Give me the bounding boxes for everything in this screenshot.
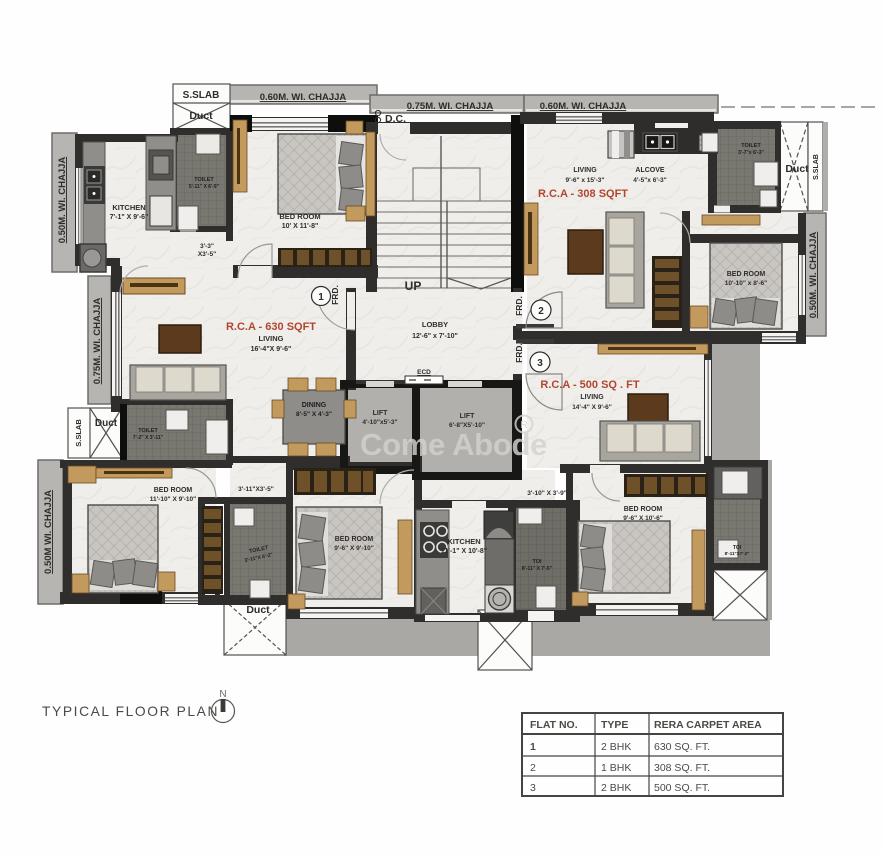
svg-text:Duct: Duct — [246, 604, 270, 616]
svg-text:9'-6" X 10'-6": 9'-6" X 10'-6" — [623, 515, 663, 522]
svg-text:KITCHEN: KITCHEN — [447, 537, 480, 546]
svg-text:0.50M. WI. CHAJJA: 0.50M. WI. CHAJJA — [57, 157, 68, 244]
svg-text:FRD.: FRD. — [330, 285, 340, 305]
svg-text:D.C.: D.C. — [385, 113, 406, 125]
svg-text:8'-5" X 4'-3": 8'-5" X 4'-3" — [296, 411, 332, 418]
svg-text:8'-11" X 7'-5": 8'-11" X 7'-5" — [522, 566, 553, 572]
svg-text:7'-1" X 9'-6": 7'-1" X 9'-6" — [110, 214, 149, 221]
svg-text:0.60M. WI. CHAJJA: 0.60M. WI. CHAJJA — [260, 92, 347, 103]
svg-text:10'-10" x 8'-6": 10'-10" x 8'-6" — [725, 280, 768, 287]
svg-text:3'-7"x 6'-3": 3'-7"x 6'-3" — [738, 150, 764, 156]
svg-text:0.50M WI. CHAJJA: 0.50M WI. CHAJJA — [43, 490, 54, 574]
svg-text:3'-3": 3'-3" — [200, 243, 214, 250]
svg-text:R: R — [520, 419, 528, 431]
svg-text:Come Abode: Come Abode — [360, 427, 547, 462]
svg-text:TYPE: TYPE — [601, 719, 628, 731]
svg-text:TOILET: TOILET — [741, 143, 761, 149]
svg-text:7'-2" X 3'-11": 7'-2" X 3'-11" — [133, 435, 164, 441]
svg-text:9'-6" x 15'-3": 9'-6" x 15'-3" — [566, 177, 605, 184]
svg-text:3'-11"X3'-5": 3'-11"X3'-5" — [238, 486, 274, 493]
svg-text:BED ROOM: BED ROOM — [154, 487, 193, 494]
svg-text:0.50M. WI. CHAJJA: 0.50M. WI. CHAJJA — [808, 232, 819, 319]
svg-text:3: 3 — [530, 782, 536, 794]
svg-text:Duct: Duct — [95, 418, 118, 429]
svg-text:3: 3 — [537, 358, 543, 369]
svg-text:LIFT: LIFT — [460, 413, 475, 420]
svg-text:FLAT NO.: FLAT NO. — [530, 719, 578, 731]
svg-text:ALCOVE: ALCOVE — [635, 167, 665, 174]
svg-text:0.75M. WI. CHAJJA: 0.75M. WI. CHAJJA — [92, 298, 103, 385]
svg-text:4'-5"x 6'-3": 4'-5"x 6'-3" — [633, 177, 666, 184]
svg-text:S.SLAB: S.SLAB — [813, 154, 820, 180]
svg-text:10' X 11'-8": 10' X 11'-8" — [282, 223, 319, 230]
svg-text:FRD.: FRD. — [514, 296, 524, 316]
svg-text:BED ROOM: BED ROOM — [727, 271, 766, 278]
svg-text:S.SLAB: S.SLAB — [74, 419, 83, 447]
svg-text:1 BHK: 1 BHK — [601, 762, 631, 774]
svg-text:12'-6" x 7'-10": 12'-6" x 7'-10" — [412, 333, 458, 340]
svg-text:R.C.A - 630 SQFT: R.C.A - 630 SQFT — [226, 321, 316, 333]
svg-text:BED ROOM: BED ROOM — [279, 212, 320, 221]
svg-text:UP: UP — [405, 279, 422, 293]
svg-text:11'-10" X 9'-10": 11'-10" X 9'-10" — [150, 496, 196, 503]
svg-text:308 SQ. FT.: 308 SQ. FT. — [654, 762, 710, 774]
svg-text:TOILET: TOILET — [194, 177, 214, 183]
svg-text:DINING: DINING — [302, 402, 327, 409]
svg-text:9'-6" X 9'-10": 9'-6" X 9'-10" — [334, 545, 374, 552]
svg-text:14'-4" X 9'-6": 14'-4" X 9'-6" — [572, 404, 612, 411]
svg-text:TOI: TOI — [532, 559, 542, 565]
svg-text:LIVING: LIVING — [580, 394, 604, 401]
svg-text:5'-11" X 6'-9": 5'-11" X 6'-9" — [189, 184, 220, 190]
svg-text:1: 1 — [530, 741, 536, 753]
svg-text:0.60M. WI. CHAJJA: 0.60M. WI. CHAJJA — [540, 101, 627, 112]
svg-text:X3'-5": X3'-5" — [198, 251, 216, 258]
svg-text:2: 2 — [538, 306, 544, 317]
svg-text:RERA CARPET AREA: RERA CARPET AREA — [654, 719, 762, 731]
svg-text:630 SQ. FT.: 630 SQ. FT. — [654, 741, 710, 753]
svg-text:1: 1 — [318, 292, 324, 303]
svg-text:3'-10" X 3'-9": 3'-10" X 3'-9" — [527, 490, 567, 497]
svg-text:Duct: Duct — [189, 110, 213, 122]
svg-text:Duct: Duct — [785, 163, 809, 175]
svg-text:R.C.A - 500 SQ . FT: R.C.A - 500 SQ . FT — [540, 379, 640, 391]
svg-text:LIFT: LIFT — [373, 410, 388, 417]
svg-text:4'-10"x5'-3": 4'-10"x5'-3" — [362, 419, 397, 426]
svg-text:0.75M. WI. CHAJJA: 0.75M. WI. CHAJJA — [407, 101, 494, 112]
svg-text:TYPICAL FLOOR PLAN: TYPICAL FLOOR PLAN — [42, 704, 219, 719]
svg-text:N: N — [219, 689, 226, 700]
svg-text:FRD.: FRD. — [514, 343, 524, 363]
svg-text:16'-4"X 9'-6": 16'-4"X 9'-6" — [251, 346, 292, 353]
svg-text:8'-11"X7'-2": 8'-11"X7'-2" — [725, 551, 750, 556]
svg-text:500 SQ. FT.: 500 SQ. FT. — [654, 782, 710, 794]
svg-text:LIVING: LIVING — [573, 167, 597, 174]
svg-text:BED ROOM: BED ROOM — [335, 536, 374, 543]
svg-text:LOBBY: LOBBY — [422, 320, 448, 329]
svg-text:R.C.A - 308 SQFT: R.C.A - 308 SQFT — [538, 188, 628, 200]
svg-text:11'-1" X 10'-8": 11'-1" X 10'-8" — [441, 548, 487, 555]
svg-text:2: 2 — [530, 762, 536, 774]
svg-text:TOILET: TOILET — [138, 428, 158, 434]
svg-text:BED ROOM: BED ROOM — [624, 506, 663, 513]
svg-text:2 BHK: 2 BHK — [601, 782, 631, 794]
svg-text:LIVING: LIVING — [258, 334, 283, 343]
svg-text:KITCHEN: KITCHEN — [112, 203, 145, 212]
svg-text:ECD: ECD — [417, 369, 431, 376]
svg-text:2 BHK: 2 BHK — [601, 741, 631, 753]
svg-text:S.SLAB: S.SLAB — [183, 90, 220, 101]
